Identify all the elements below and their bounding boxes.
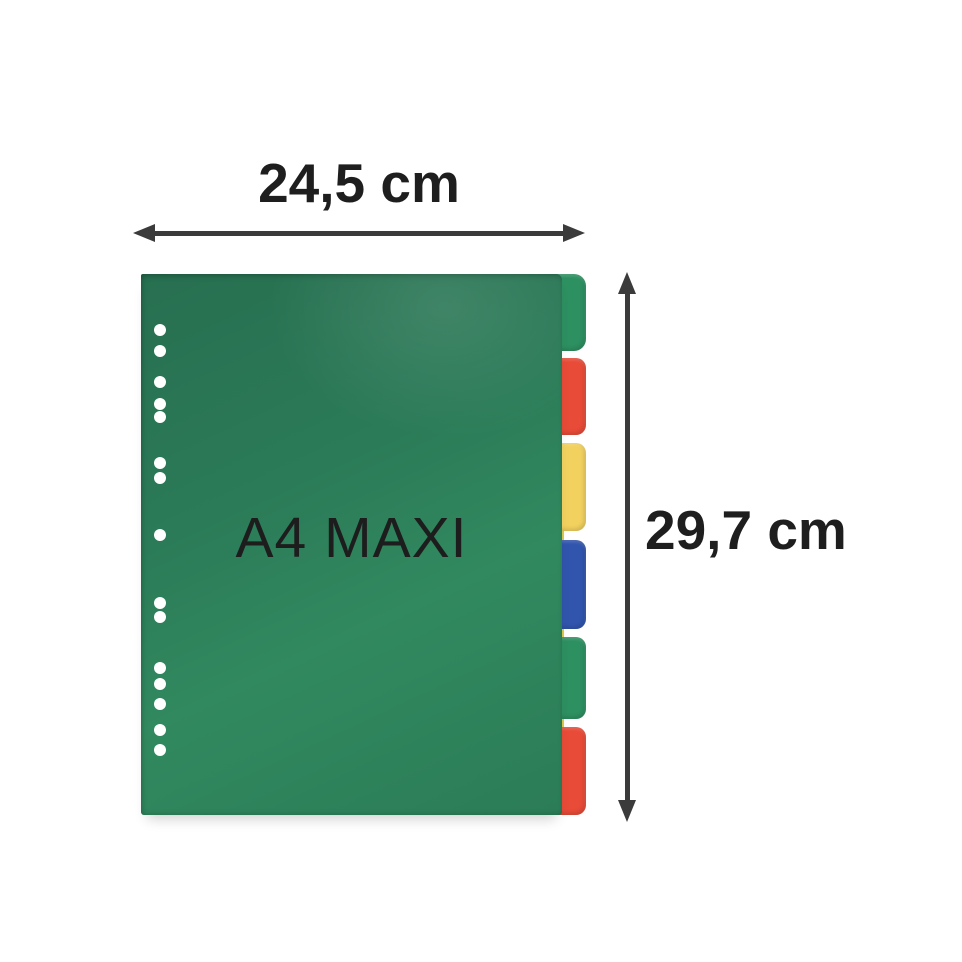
divider-front-sheet: A4 MAXI: [141, 274, 562, 815]
punch-hole: [154, 411, 166, 423]
punch-hole: [154, 698, 166, 710]
punch-hole: [154, 457, 166, 469]
punch-hole: [154, 744, 166, 756]
width-dimension-label: 24,5 cm: [133, 153, 585, 214]
punch-hole: [154, 611, 166, 623]
punch-hole: [154, 345, 166, 357]
punch-hole: [154, 678, 166, 690]
punch-hole: [154, 376, 166, 388]
punch-hole: [154, 398, 166, 410]
punch-hole: [154, 324, 166, 336]
width-arrow-line: [149, 231, 569, 236]
punch-hole: [154, 472, 166, 484]
arrowhead-right-icon: [563, 224, 585, 242]
punch-hole: [154, 662, 166, 674]
width-dimension-arrow: [133, 224, 585, 242]
punch-hole: [154, 597, 166, 609]
punch-hole: [154, 724, 166, 736]
height-dimension-arrow: [618, 272, 636, 822]
product-size-label: A4 MAXI: [141, 505, 562, 571]
arrowhead-down-icon: [618, 800, 636, 822]
height-arrow-line: [625, 288, 630, 806]
height-dimension-label: 29,7 cm: [645, 500, 847, 561]
product-image-canvas: 24,5 cm A4 MAXI 29,7 cm: [0, 0, 962, 962]
